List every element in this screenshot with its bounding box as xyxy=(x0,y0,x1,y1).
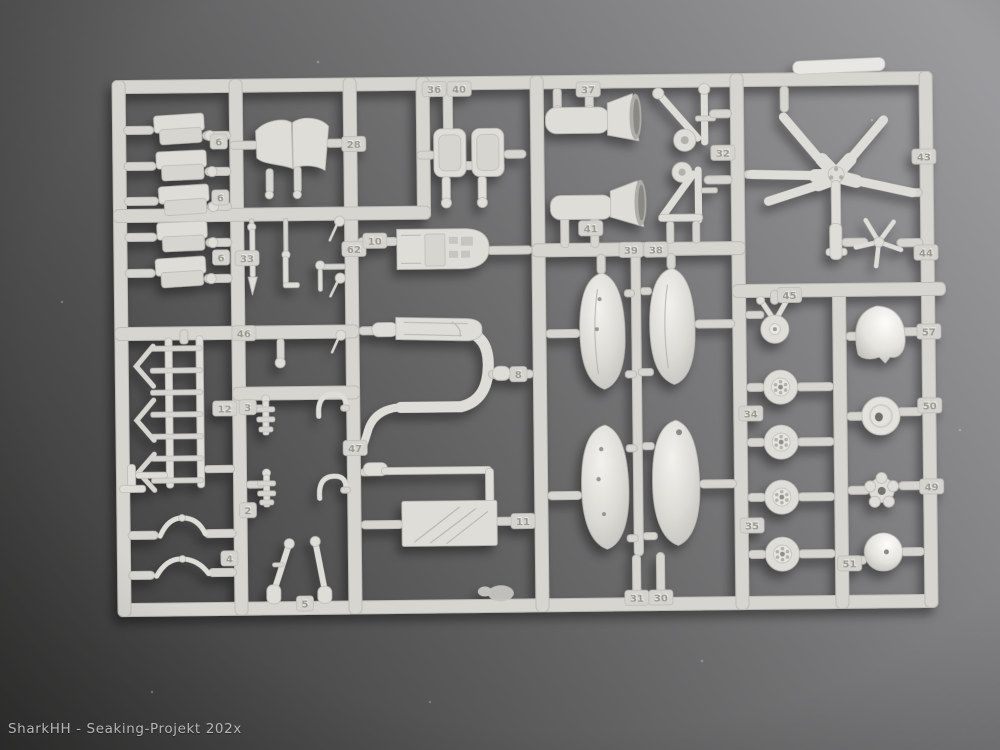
vignette xyxy=(0,0,1000,750)
photo-canvas: 6666663333464612123322445528286262101047… xyxy=(0,0,1000,750)
watermark-text: SharkHH - Seaking-Projekt 202x xyxy=(8,721,242,737)
sprue-photograph: 6666663333464612123322445528286262101047… xyxy=(0,0,1000,750)
